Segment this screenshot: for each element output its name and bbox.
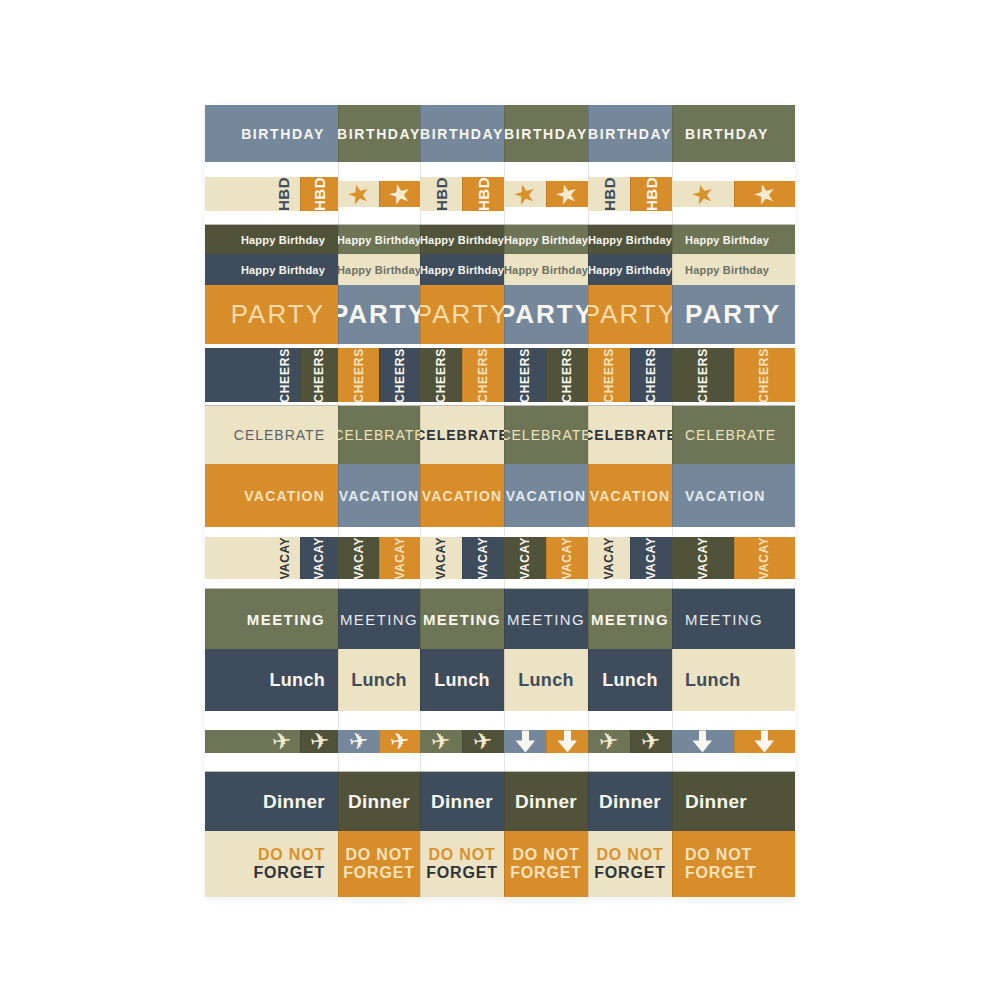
sticker-label: BIRTHDAY — [338, 126, 420, 142]
sticker-celebrate: CELEBRATE — [420, 406, 504, 464]
sticker-celebrate: CELEBRATE — [504, 406, 588, 464]
sticker-hbd-stars: HBD — [588, 177, 630, 211]
star-icon: ★ — [344, 181, 373, 207]
sticker-cheers: CHEERS — [546, 348, 588, 403]
sticker-hbd-stars: HBD — [205, 177, 300, 211]
sticker-do-not-forget: DO NOTFORGET — [504, 831, 588, 897]
sticker-label: PARTY — [685, 299, 781, 330]
sticker-vacation: VACATION — [588, 464, 672, 527]
sticker-label: CHEERS — [435, 348, 447, 403]
sticker-label: CHEERS — [561, 348, 573, 403]
sticker-pair-travel-icons: ✈✈ — [588, 711, 672, 772]
sticker-lunch: Lunch — [205, 649, 338, 711]
sticker-celebrate: CELEBRATE — [205, 406, 338, 464]
sticker-meeting: MEETING — [504, 589, 588, 649]
sticker-label: VACAY — [603, 537, 615, 580]
sticker-cheers: CHEERS — [420, 348, 462, 403]
airplane-icon: ✈ — [598, 730, 620, 753]
sticker-party: PARTY — [205, 285, 338, 344]
sticker-party: PARTY — [588, 285, 672, 344]
sticker-row-dinner: DinnerDinnerDinnerDinnerDinnerDinner — [205, 772, 795, 831]
sticker-label: VACAY — [645, 537, 657, 580]
sticker-vacay: VACAY — [300, 537, 338, 580]
sticker-pair-cheers: CHEERSCHEERS — [338, 344, 420, 406]
sticker-star: ★ — [672, 181, 734, 207]
sticker-airplane: ✈ — [338, 730, 379, 753]
sticker-label: PARTY — [420, 299, 504, 330]
sticker-label: Lunch — [602, 670, 658, 691]
sticker-label: CELEBRATE — [420, 427, 504, 443]
sticker-meeting: MEETING — [205, 589, 338, 649]
sticker-row-do-not-forget: DO NOTFORGETDO NOTFORGETDO NOTFORGETDO N… — [205, 831, 795, 897]
sticker-airplane: ✈ — [588, 730, 630, 753]
sticker-pair-travel-icons — [672, 711, 795, 772]
sticker-line: DO NOT — [345, 846, 412, 864]
sticker-row-celebrate: CELEBRATECELEBRATECELEBRATECELEBRATECELE… — [205, 406, 795, 464]
sticker-pair-cheers: CHEERSCHEERS — [504, 344, 588, 406]
sticker-vacay: VACAY — [734, 537, 796, 580]
sticker-pair-vacay: VACAYVACAY — [205, 527, 338, 589]
sticker-label: Dinner — [685, 791, 747, 813]
sticker-dinner: Dinner — [205, 772, 338, 831]
sticker-label: CELEBRATE — [504, 427, 588, 443]
sticker-do-not-forget: DO NOTFORGET — [588, 831, 672, 897]
sticker-party: PARTY — [338, 285, 420, 344]
sticker-pair-vacay: VACAYVACAY — [672, 527, 795, 589]
sticker-birthday: BIRTHDAY — [504, 105, 588, 162]
sticker-line: DO NOT — [258, 846, 325, 864]
airplane-icon: ✈ — [430, 730, 452, 753]
sticker-label: Happy Birthday — [504, 264, 588, 276]
sticker-label: VACATION — [590, 488, 671, 504]
sticker-label: Happy Birthday — [420, 234, 504, 246]
sticker-airplane: ✈ — [462, 730, 504, 753]
sticker-label: CHEERS — [477, 348, 489, 403]
sticker-cheers: CHEERS — [300, 348, 338, 403]
sticker-star: ★ — [379, 181, 420, 207]
sticker-cheers: CHEERS — [379, 348, 420, 403]
sticker-label: Happy Birthday — [685, 264, 769, 276]
sticker-label: MEETING — [507, 611, 585, 628]
arrow-down-icon — [754, 730, 775, 753]
sticker-star: ★ — [504, 181, 546, 207]
sticker-dinner: Dinner — [420, 772, 504, 831]
sticker-label: BIRTHDAY — [420, 126, 504, 142]
sticker-label: CELEBRATE — [588, 427, 672, 443]
sticker-line: DO NOT — [512, 846, 579, 864]
sticker-vacay: VACAY — [205, 537, 300, 580]
airplane-icon: ✈ — [347, 730, 369, 753]
sticker-hbd-stars: HBD — [630, 177, 672, 211]
sticker-line: FORGET — [594, 864, 665, 882]
sticker-row-hbd-stars: HBDHBD★★HBDHBD★★HBDHBD★★ — [205, 162, 795, 225]
airplane-icon: ✈ — [308, 730, 330, 753]
sticker-happy-birthday-olive: Happy Birthday — [588, 225, 672, 254]
sticker-label: CHEERS — [353, 348, 365, 403]
arrow-down-icon — [515, 730, 536, 753]
sticker-airplane: ✈ — [630, 730, 672, 753]
sticker-pair-hbd-stars: ★★ — [672, 162, 795, 225]
sticker-label: MEETING — [340, 611, 418, 628]
sticker-label: Dinner — [599, 791, 661, 813]
sticker-label: VACAY — [435, 537, 447, 580]
arrow-down-icon — [557, 730, 578, 753]
sticker-label: PARTY — [504, 299, 588, 330]
sticker-celebrate: CELEBRATE — [588, 406, 672, 464]
sticker-label: HBD — [276, 177, 291, 211]
sticker-label: Lunch — [685, 670, 741, 691]
sticker-label: CELEBRATE — [685, 427, 776, 443]
sticker-pair-vacay: VACAYVACAY — [588, 527, 672, 589]
sticker-label: MEETING — [423, 611, 501, 628]
sticker-arrow-down — [734, 730, 796, 753]
sticker-vacay: VACAY — [630, 537, 672, 580]
sticker-star: ★ — [338, 181, 379, 207]
sticker-label: VACAY — [477, 537, 489, 580]
sticker-label: HBD — [602, 177, 617, 211]
sticker-label: CHEERS — [313, 348, 325, 403]
sticker-dinner: Dinner — [504, 772, 588, 831]
sticker-airplane: ✈ — [300, 730, 338, 753]
sticker-happy-birthday-slate: Happy Birthday — [504, 254, 588, 285]
sticker-label: BIRTHDAY — [588, 126, 672, 142]
sticker-label: Happy Birthday — [685, 234, 769, 246]
sticker-arrow-down — [546, 730, 588, 753]
sticker-meeting: MEETING — [588, 589, 672, 649]
sticker-vacay: VACAY — [588, 537, 630, 580]
sticker-happy-birthday-olive: Happy Birthday — [672, 225, 795, 254]
sticker-party: PARTY — [420, 285, 504, 344]
sticker-label: VACAY — [279, 537, 291, 580]
sticker-line: FORGET — [510, 864, 581, 882]
sticker-label: VACAY — [394, 537, 406, 580]
sticker-cheers: CHEERS — [504, 348, 546, 403]
sticker-label: CELEBRATE — [234, 427, 325, 443]
sticker-happy-birthday-olive: Happy Birthday — [205, 225, 338, 254]
sticker-birthday: BIRTHDAY — [588, 105, 672, 162]
sticker-label: VACATION — [506, 488, 587, 504]
sticker-dinner: Dinner — [338, 772, 420, 831]
sticker-label: CHEERS — [394, 348, 406, 403]
star-icon: ★ — [385, 181, 414, 207]
sticker-label: PARTY — [231, 299, 325, 330]
sticker-vacation: VACATION — [420, 464, 504, 527]
sticker-label: VACAY — [313, 537, 325, 580]
sticker-label: HBD — [312, 177, 327, 211]
sticker-label: PARTY — [588, 299, 672, 330]
sticker-star: ★ — [546, 181, 588, 207]
sticker-line: FORGET — [426, 864, 497, 882]
sticker-label: MEETING — [591, 611, 669, 628]
sticker-label: CHEERS — [758, 348, 770, 403]
sticker-label: BIRTHDAY — [241, 126, 325, 142]
sticker-arrow-down — [504, 730, 546, 753]
sticker-label: HBD — [644, 177, 659, 211]
sticker-label: Happy Birthday — [338, 264, 420, 276]
sticker-label: CHEERS — [519, 348, 531, 403]
sticker-label: VACATION — [422, 488, 503, 504]
sticker-dinner: Dinner — [588, 772, 672, 831]
sticker-celebrate: CELEBRATE — [338, 406, 420, 464]
sticker-row-cheers: CHEERSCHEERSCHEERSCHEERSCHEERSCHEERSCHEE… — [205, 344, 795, 406]
sticker-line: DO NOT — [685, 846, 752, 864]
sticker-airplane: ✈ — [379, 730, 420, 753]
sticker-vacation: VACATION — [672, 464, 795, 527]
sticker-label: HBD — [434, 177, 449, 211]
sticker-vacay: VACAY — [420, 537, 462, 580]
sticker-cheers: CHEERS — [205, 348, 300, 403]
sticker-label: VACAY — [519, 537, 531, 580]
sticker-birthday: BIRTHDAY — [338, 105, 420, 162]
sticker-vacay: VACAY — [504, 537, 546, 580]
sticker-hbd-stars: HBD — [300, 177, 338, 211]
sticker-line: FORGET — [254, 864, 325, 882]
sticker-cheers: CHEERS — [462, 348, 504, 403]
sticker-label: VACATION — [339, 488, 420, 504]
sticker-label: Lunch — [270, 670, 326, 691]
star-icon: ★ — [510, 181, 539, 207]
sticker-lunch: Lunch — [504, 649, 588, 711]
sticker-party: PARTY — [672, 285, 795, 344]
star-icon: ★ — [688, 181, 717, 207]
sticker-pair-hbd-stars: HBDHBD — [205, 162, 338, 225]
sticker-row-happy-birthday-olive: Happy BirthdayHappy BirthdayHappy Birthd… — [205, 225, 795, 254]
sticker-label: Happy Birthday — [241, 264, 325, 276]
sticker-cheers: CHEERS — [734, 348, 796, 403]
sticker-hbd-stars: HBD — [462, 177, 504, 211]
sticker-label: Happy Birthday — [241, 234, 325, 246]
sticker-happy-birthday-slate: Happy Birthday — [672, 254, 795, 285]
sticker-label: CHEERS — [279, 348, 291, 403]
sticker-label: PARTY — [338, 299, 420, 330]
sticker-pair-cheers: CHEERSCHEERS — [205, 344, 338, 406]
sticker-meeting: MEETING — [338, 589, 420, 649]
sticker-label: Dinner — [348, 791, 410, 813]
sticker-happy-birthday-slate: Happy Birthday — [338, 254, 420, 285]
sticker-cheers: CHEERS — [672, 348, 734, 403]
sticker-do-not-forget: DO NOTFORGET — [420, 831, 504, 897]
sticker-label: Dinner — [515, 791, 577, 813]
sticker-label: Happy Birthday — [420, 264, 504, 276]
sticker-star: ★ — [734, 181, 796, 207]
sticker-meeting: MEETING — [420, 589, 504, 649]
airplane-icon: ✈ — [640, 730, 662, 753]
sticker-row-travel-icons: ✈✈✈✈✈✈✈✈ — [205, 711, 795, 772]
sticker-happy-birthday-olive: Happy Birthday — [504, 225, 588, 254]
sticker-do-not-forget: DO NOTFORGET — [672, 831, 795, 897]
sticker-hbd-stars: HBD — [420, 177, 462, 211]
sticker-birthday: BIRTHDAY — [672, 105, 795, 162]
sticker-label: Lunch — [518, 670, 574, 691]
sticker-label: CELEBRATE — [338, 427, 420, 443]
sticker-pair-travel-icons: ✈✈ — [338, 711, 420, 772]
arrow-down-icon — [692, 730, 713, 753]
sticker-vacay: VACAY — [379, 537, 420, 580]
sticker-happy-birthday-olive: Happy Birthday — [420, 225, 504, 254]
sticker-label: HBD — [476, 177, 491, 211]
sticker-pair-vacay: VACAYVACAY — [338, 527, 420, 589]
sticker-row-lunch: LunchLunchLunchLunchLunchLunch — [205, 649, 795, 711]
sticker-cheers: CHEERS — [338, 348, 379, 403]
sticker-label: VACAY — [353, 537, 365, 580]
sticker-row-party: PARTYPARTYPARTYPARTYPARTYPARTY — [205, 285, 795, 344]
airplane-icon: ✈ — [472, 730, 494, 753]
sticker-label: CHEERS — [603, 348, 615, 403]
sticker-vacation: VACATION — [504, 464, 588, 527]
airplane-icon: ✈ — [271, 730, 293, 753]
sticker-row-meeting: MEETINGMEETINGMEETINGMEETINGMEETINGMEETI… — [205, 589, 795, 649]
sticker-label: Happy Birthday — [338, 234, 420, 246]
sticker-line: DO NOT — [596, 846, 663, 864]
sticker-lunch: Lunch — [588, 649, 672, 711]
sticker-label: Dinner — [263, 791, 325, 813]
sticker-row-happy-birthday-slate: Happy BirthdayHappy BirthdayHappy Birthd… — [205, 254, 795, 285]
sticker-lunch: Lunch — [672, 649, 795, 711]
sticker-happy-birthday-slate: Happy Birthday — [205, 254, 338, 285]
sticker-label: Lunch — [434, 670, 490, 691]
sticker-pair-cheers: CHEERSCHEERS — [588, 344, 672, 406]
sticker-happy-birthday-slate: Happy Birthday — [420, 254, 504, 285]
sticker-do-not-forget: DO NOTFORGET — [205, 831, 338, 897]
sticker-pair-vacay: VACAYVACAY — [420, 527, 504, 589]
sticker-label: CHEERS — [697, 348, 709, 403]
sticker-pair-cheers: CHEERSCHEERS — [672, 344, 795, 406]
sticker-vacation: VACATION — [205, 464, 338, 527]
sticker-pair-travel-icons: ✈✈ — [205, 711, 338, 772]
sticker-label: MEETING — [685, 611, 763, 628]
sticker-label: Happy Birthday — [588, 234, 672, 246]
sticker-pair-cheers: CHEERSCHEERS — [420, 344, 504, 406]
sticker-label: Happy Birthday — [588, 264, 672, 276]
sticker-line: DO NOT — [428, 846, 495, 864]
sticker-label: VACATION — [685, 488, 766, 504]
sticker-do-not-forget: DO NOTFORGET — [338, 831, 420, 897]
sticker-label: VACAY — [697, 537, 709, 580]
sticker-label: VACATION — [244, 488, 325, 504]
sticker-pair-hbd-stars: HBDHBD — [420, 162, 504, 225]
sticker-vacay: VACAY — [338, 537, 379, 580]
sticker-pair-travel-icons — [504, 711, 588, 772]
star-icon: ★ — [552, 181, 581, 207]
sticker-label: BIRTHDAY — [685, 126, 769, 142]
star-icon: ★ — [750, 181, 779, 207]
sticker-line: FORGET — [685, 864, 756, 882]
sticker-happy-birthday-slate: Happy Birthday — [588, 254, 672, 285]
sticker-row-vacay: VACAYVACAYVACAYVACAYVACAYVACAYVACAYVACAY… — [205, 527, 795, 589]
sticker-party: PARTY — [504, 285, 588, 344]
sticker-birthday: BIRTHDAY — [420, 105, 504, 162]
airplane-icon: ✈ — [388, 730, 410, 753]
sticker-pair-hbd-stars: ★★ — [338, 162, 420, 225]
sticker-birthday: BIRTHDAY — [205, 105, 338, 162]
sticker-sheet: BIRTHDAYBIRTHDAYBIRTHDAYBIRTHDAYBIRTHDAY… — [205, 105, 795, 897]
sticker-label: Dinner — [431, 791, 493, 813]
sticker-dinner: Dinner — [672, 772, 795, 831]
sticker-row-vacation: VACATIONVACATIONVACATIONVACATIONVACATION… — [205, 464, 795, 527]
sticker-row-birthday: BIRTHDAYBIRTHDAYBIRTHDAYBIRTHDAYBIRTHDAY… — [205, 105, 795, 162]
sticker-airplane: ✈ — [205, 730, 300, 753]
sticker-pair-vacay: VACAYVACAY — [504, 527, 588, 589]
sticker-cheers: CHEERS — [588, 348, 630, 403]
sticker-vacay: VACAY — [672, 537, 734, 580]
sticker-label: MEETING — [247, 611, 325, 628]
sticker-label: CHEERS — [645, 348, 657, 403]
sticker-airplane: ✈ — [420, 730, 462, 753]
sticker-lunch: Lunch — [338, 649, 420, 711]
sticker-label: Happy Birthday — [504, 234, 588, 246]
sticker-pair-hbd-stars: HBDHBD — [588, 162, 672, 225]
sticker-vacay: VACAY — [546, 537, 588, 580]
sticker-line: FORGET — [343, 864, 414, 882]
sticker-pair-hbd-stars: ★★ — [504, 162, 588, 225]
sticker-vacation: VACATION — [338, 464, 420, 527]
sticker-label: VACAY — [758, 537, 770, 580]
sticker-happy-birthday-olive: Happy Birthday — [338, 225, 420, 254]
sticker-lunch: Lunch — [420, 649, 504, 711]
sticker-meeting: MEETING — [672, 589, 795, 649]
sticker-pair-travel-icons: ✈✈ — [420, 711, 504, 772]
sticker-label: Lunch — [351, 670, 407, 691]
sticker-label: VACAY — [561, 537, 573, 580]
sticker-celebrate: CELEBRATE — [672, 406, 795, 464]
sticker-vacay: VACAY — [462, 537, 504, 580]
sticker-arrow-down — [672, 730, 734, 753]
sticker-cheers: CHEERS — [630, 348, 672, 403]
sticker-label: BIRTHDAY — [504, 126, 588, 142]
